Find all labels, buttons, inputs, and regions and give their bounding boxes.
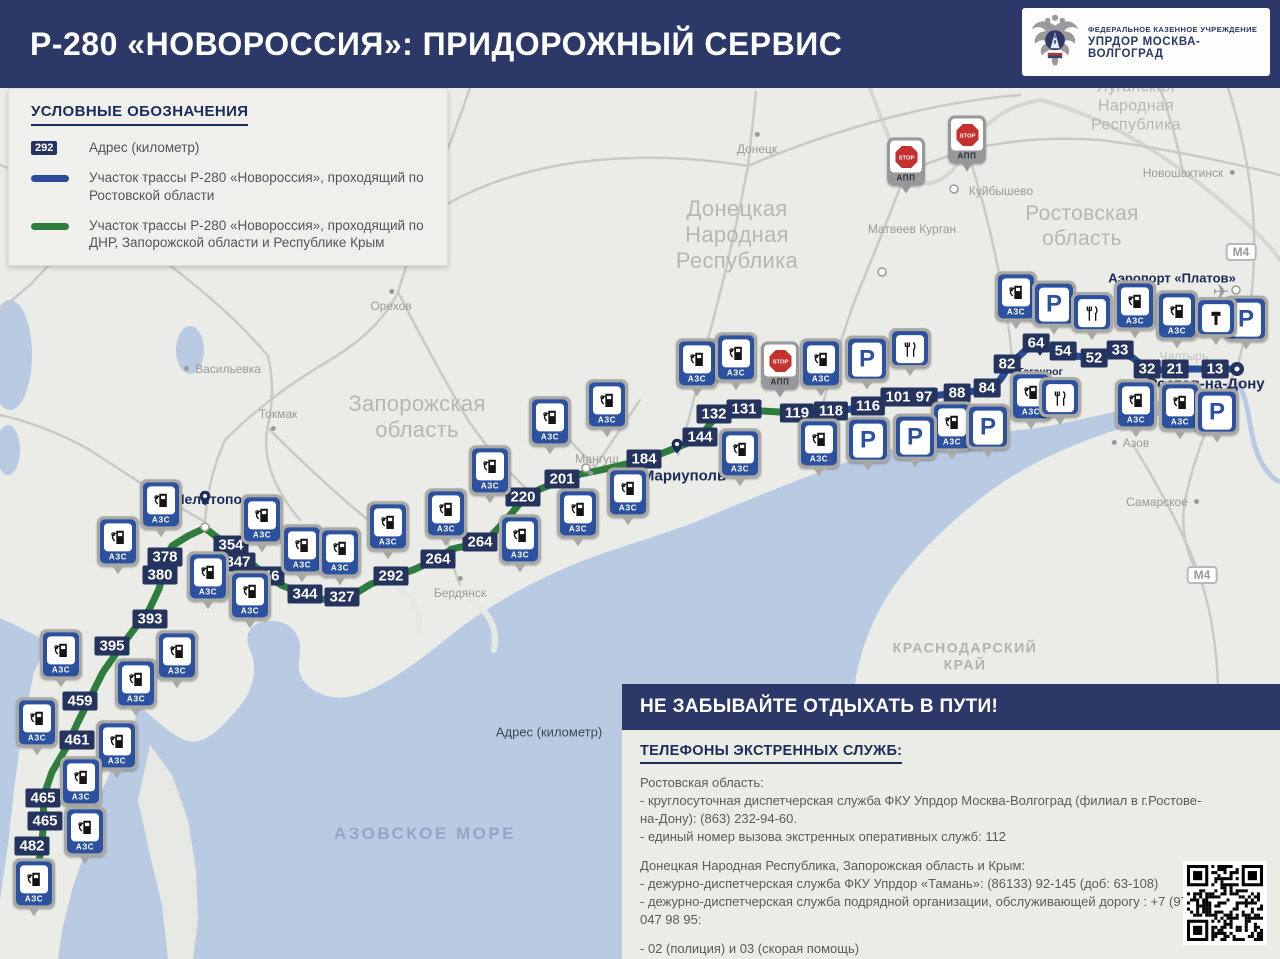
km-marker-459: 459	[62, 692, 97, 711]
emergency-phones-text: Ростовская область:- круглосуточная дисп…	[640, 774, 1205, 957]
city-label: Орехов	[370, 299, 411, 313]
stop-icon: STOPАПП	[887, 138, 925, 194]
city-label: Токмак	[259, 407, 298, 421]
km-marker-144: 144	[682, 428, 717, 447]
food-icon	[1071, 292, 1113, 340]
parking-icon: P	[1032, 281, 1076, 335]
km-marker-395: 395	[94, 637, 129, 656]
phone-section: Донецкая Народная Республика, Запорожска…	[640, 857, 1205, 929]
km-marker-264: 264	[420, 550, 455, 569]
city-dot	[588, 471, 593, 476]
city-dot	[270, 426, 275, 431]
km-marker-465: 465	[27, 812, 62, 831]
azs-icon: АЗС	[187, 551, 229, 609]
km-marker-64: 64	[1023, 334, 1050, 353]
azs-icon: АЗС	[719, 428, 761, 486]
azs-icon: АЗС	[676, 338, 718, 396]
region-label-zaporozhskaya: Запорожская область	[348, 391, 485, 443]
km-marker-21: 21	[1162, 360, 1189, 379]
phone-section-title: Ростовская область:	[640, 774, 1205, 792]
stop-icon: STOPАПП	[948, 116, 986, 172]
parking-icon: P	[893, 414, 937, 468]
azs-icon: АЗС	[281, 524, 323, 582]
km-badge-sample: 292	[31, 141, 57, 155]
km-marker-264: 264	[462, 533, 497, 552]
city-label: Мариуполь	[642, 468, 726, 485]
km-marker-465: 465	[25, 789, 60, 808]
city-dot	[755, 132, 760, 137]
azs-icon: АЗС	[469, 445, 511, 503]
azs-icon: АЗС	[64, 806, 106, 864]
azs-icon: АЗС	[367, 501, 409, 559]
svg-text:STOP: STOP	[772, 359, 788, 365]
azs-icon: АЗС	[529, 396, 571, 454]
azs-icon: АЗС	[499, 514, 541, 572]
road-sign-m4: М4	[1187, 566, 1218, 584]
km-marker-378: 378	[147, 548, 182, 567]
azs-icon: АЗС	[995, 271, 1037, 329]
azs-icon: АЗС	[798, 418, 840, 476]
info-panel-title: НЕ ЗАБЫВАЙТЕ ОТДЫХАТЬ В ПУТИ!	[622, 684, 1280, 730]
city-dot	[1112, 440, 1117, 445]
city-label: Бердянск	[434, 586, 486, 600]
region-label-rostovskaya: Ростовская область	[1025, 202, 1138, 252]
phone-section-line: - дежурно-диспетчерская служба подрядной…	[640, 893, 1205, 929]
km-marker-184: 184	[626, 450, 661, 469]
road-sign-m4: М4	[1226, 243, 1257, 261]
azs-icon: АЗС	[140, 479, 182, 537]
green-route-swatch	[31, 223, 69, 230]
parking-icon: P	[966, 404, 1010, 458]
page-title: Р-280 «НОВОРОССИЯ»: ПРИДОРОЖНЫЙ СЕРВИС	[30, 0, 842, 88]
km-marker-13: 13	[1202, 360, 1229, 379]
city-dot	[184, 366, 189, 371]
km-marker-344: 344	[287, 585, 322, 604]
azs-icon: АЗС	[97, 516, 139, 574]
blue-route-swatch	[31, 175, 69, 182]
azs-icon: АЗС	[229, 570, 271, 628]
parking-icon: P	[846, 417, 890, 471]
city-label: Куйбышево	[969, 184, 1033, 198]
region-label-krasnodarsky: КРАСНОДАРСКИЙ КРАЙ	[893, 639, 1038, 672]
svg-text:STOP: STOP	[959, 133, 975, 139]
map-pin-icon	[197, 488, 214, 514]
azs-icon: АЗС	[40, 629, 82, 687]
city-dot	[389, 289, 394, 294]
phone-section: - 02 (полиция) и 03 (скорая помощь)	[640, 940, 1205, 958]
km-marker-380: 380	[142, 566, 177, 585]
service-icon	[1195, 297, 1237, 345]
km-marker-32: 32	[1134, 360, 1161, 379]
km-marker-52: 52	[1081, 349, 1108, 368]
eagle-emblem-icon	[1028, 13, 1082, 71]
km-marker-54: 54	[1050, 342, 1077, 361]
azs-icon: АЗС	[319, 527, 361, 585]
city-label: Самарское	[1126, 495, 1188, 509]
qr-code	[1183, 861, 1267, 945]
phone-section-line: - круглосуточная диспетчерская служба ФК…	[640, 792, 1205, 828]
km-marker-292: 292	[373, 567, 408, 586]
azs-icon: АЗС	[715, 332, 757, 390]
azs-icon: АЗС	[607, 467, 649, 525]
azs-icon: АЗС	[13, 858, 55, 916]
azs-icon: АЗС	[586, 379, 628, 437]
km-marker-88: 88	[944, 384, 971, 403]
info-panel: НЕ ЗАБЫВАЙТЕ ОТДЫХАТЬ В ПУТИ! ТЕЛЕФОНЫ Э…	[622, 684, 1280, 959]
km-marker-482: 482	[14, 837, 49, 856]
azs-icon: АЗС	[96, 720, 138, 778]
azs-icon: АЗС	[156, 630, 198, 688]
azs-icon: АЗС	[1156, 290, 1198, 348]
km-marker-393: 393	[132, 610, 167, 629]
parking-icon: P	[1195, 389, 1239, 443]
sea-label: АЗОВСКОЕ МОРЕ	[334, 824, 516, 844]
region-label-dnr: Донецкая Народная Республика	[676, 196, 798, 274]
city-dot	[1194, 499, 1199, 504]
legend-item-label: Участок трассы Р-280 «Новороссия», прохо…	[89, 169, 431, 204]
svg-text:STOP: STOP	[898, 155, 914, 161]
azs-icon: АЗС	[557, 488, 599, 546]
legend-item-address: 292 Адрес (километр)	[31, 139, 431, 156]
legend-item-blue-section: Участок трассы Р-280 «Новороссия», прохо…	[31, 169, 431, 204]
azs-icon: АЗС	[115, 658, 157, 716]
km-marker-201: 201	[544, 470, 579, 489]
legend-title: УСЛОВНЫЕ ОБОЗНАЧЕНИЯ	[31, 103, 248, 126]
city-label: Матвеев Курган	[868, 222, 956, 236]
info-panel-body: ТЕЛЕФОНЫ ЭКСТРЕННЫХ СЛУЖБ: Ростовская об…	[622, 730, 1280, 959]
header-bar: Р-280 «НОВОРОССИЯ»: ПРИДОРОЖНЫЙ СЕРВИС Ф…	[0, 0, 1280, 88]
phone-section-line: - дежурно-диспетчерская служба ФКУ Упрдо…	[640, 875, 1205, 893]
azs-icon: АЗС	[241, 494, 283, 552]
legend-panel: УСЛОВНЫЕ ОБОЗНАЧЕНИЯ 292 Адрес (километр…	[8, 88, 448, 266]
legend-item-green-section: Участок трассы Р-280 «Новороссия», прохо…	[31, 217, 431, 252]
km-marker-327: 327	[324, 588, 359, 607]
azs-icon: АЗС	[16, 697, 58, 755]
logo-institution-line: ФЕДЕРАЛЬНОЕ КАЗЕННОЕ УЧРЕЖДЕНИЕ	[1088, 25, 1270, 34]
azs-icon: АЗС	[1115, 379, 1157, 437]
azs-icon: АЗС	[425, 488, 467, 546]
phone-section-line: - единый номер вызова экстренных операти…	[640, 828, 1205, 846]
km-marker-33: 33	[1107, 341, 1134, 360]
city-dot	[457, 576, 462, 581]
city-dot	[1229, 170, 1234, 175]
city-label: Донецк	[737, 142, 777, 156]
agency-logo: ФЕДЕРАЛЬНОЕ КАЗЕННОЕ УЧРЕЖДЕНИЕ УПРДОР М…	[1022, 8, 1270, 76]
infographic-root: Запорожская областьДонецкая Народная Рес…	[0, 0, 1280, 959]
city-label: Мангуш	[575, 452, 618, 466]
food-icon	[889, 328, 931, 376]
food-icon	[1039, 377, 1081, 425]
km-marker-84: 84	[974, 379, 1001, 398]
legend-item-label: Участок трассы Р-280 «Новороссия», прохо…	[89, 217, 431, 252]
azs-icon: АЗС	[1114, 280, 1156, 338]
phone-section-title: Донецкая Народная Республика, Запорожска…	[640, 857, 1205, 875]
logo-org-name: УПРДОР МОСКВА-ВОЛГОГРАД	[1088, 36, 1270, 60]
stop-icon: STOPАПП	[761, 342, 799, 398]
km-marker-131: 131	[726, 400, 761, 419]
address-km-caption: Адрес (километр)	[496, 725, 602, 740]
parking-icon: P	[845, 336, 889, 390]
city-label: Новошахтинск	[1143, 166, 1224, 180]
city-label: Васильевка	[195, 362, 261, 376]
emergency-phones-title: ТЕЛЕФОНЫ ЭКСТРЕННЫХ СЛУЖБ:	[640, 743, 902, 764]
city-label: Азов	[1123, 436, 1149, 450]
km-marker-461: 461	[59, 731, 94, 750]
phone-section: Ростовская область:- круглосуточная дисп…	[640, 774, 1205, 846]
phone-section-line: - 02 (полиция) и 03 (скорая помощь)	[640, 940, 1205, 958]
azs-icon: АЗС	[800, 338, 842, 396]
legend-item-label: Адрес (километр)	[89, 139, 199, 156]
